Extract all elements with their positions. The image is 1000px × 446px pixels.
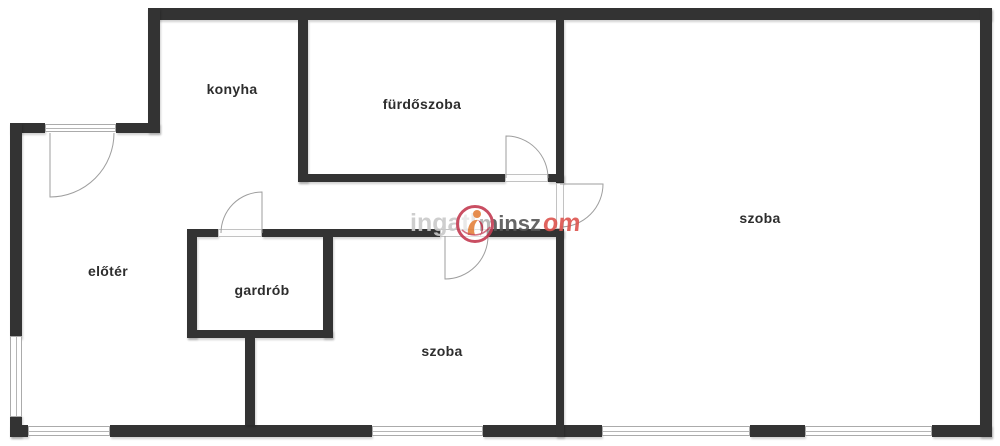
wall-bottom-d [750, 425, 805, 437]
wall-bottom-c [483, 425, 602, 437]
wall-kitchen-left [148, 8, 160, 133]
entrance-threshold [45, 124, 116, 132]
window-left-wall [10, 336, 22, 417]
wall-bath-bottom-b [548, 174, 564, 182]
watermark-logo-icon [454, 203, 496, 245]
watermark-text-red: om [542, 209, 583, 238]
gardrob-door-threshold [218, 229, 262, 237]
room-label-konyha: konyha [207, 81, 258, 97]
bathroom-door-arc [506, 136, 548, 178]
bathroom-door-threshold [505, 174, 548, 182]
wall-entry-top-b [116, 123, 160, 133]
room-label-eloter: előtér [88, 263, 128, 279]
wall-bottom-a [10, 425, 28, 437]
watermark: ingatl minsz om [410, 203, 610, 247]
wall-bath-right [556, 20, 564, 183]
wall-bottom-e [932, 425, 992, 437]
window-bottom-4 [805, 426, 932, 436]
wall-right [980, 8, 992, 437]
wall-top [148, 8, 992, 20]
wall-gardrob-bottom [187, 330, 333, 338]
wall-bath-bottom-a [298, 174, 505, 182]
wall-gardrob-right [323, 237, 333, 338]
room-label-szoba-bottom: szoba [421, 343, 462, 359]
room-label-gardrob: gardrób [235, 282, 290, 298]
wall-stub [245, 338, 255, 425]
window-bottom-3 [602, 426, 750, 436]
room-label-furdoszoba: fürdőszoba [383, 96, 461, 112]
floorplan-canvas: konyha fürdőszoba előtér gardrób szoba s… [0, 0, 1000, 446]
entrance-door-arc [50, 133, 114, 197]
room-label-szoba-right: szoba [739, 210, 780, 226]
wall-bottom-b [110, 425, 372, 437]
wall-bath-left [298, 20, 308, 182]
wall-left-upper [10, 123, 22, 338]
gardrob-door-arc [221, 192, 262, 233]
window-bottom-2 [372, 426, 483, 436]
wall-hall-bottom-a [187, 229, 218, 237]
wall-room-divider [556, 229, 564, 437]
window-bottom-1 [28, 426, 110, 436]
wall-gardrob-left [187, 237, 197, 338]
